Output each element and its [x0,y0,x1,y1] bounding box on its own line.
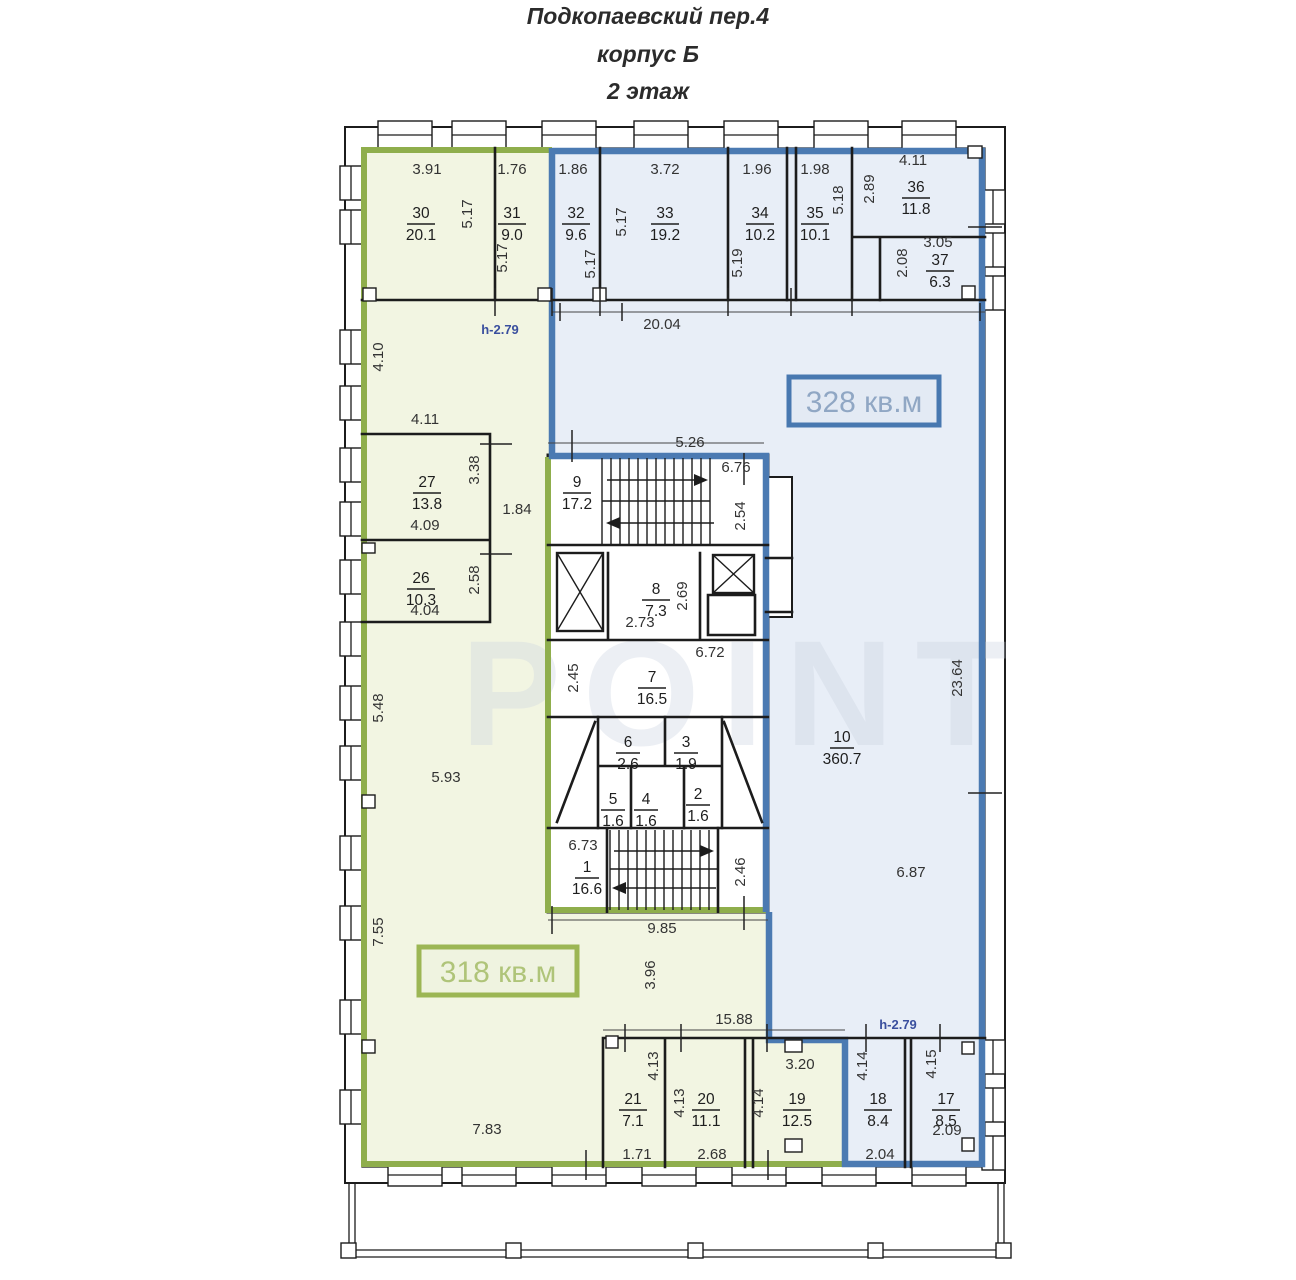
room-19-area: 12.5 [782,1113,812,1130]
dim-5-48: 5.48 [370,693,387,722]
dim-2-54: 2.54 [732,501,749,530]
dim-4-13-r20: 4.13 [671,1088,688,1117]
area-badge-green: 318 кв.м [419,947,577,995]
room-3-area: 1.9 [675,756,697,773]
room-33-area: 19.2 [650,227,680,244]
room-27-number: 27 [418,474,435,491]
dim-4-13-r21: 4.13 [645,1051,662,1080]
green-area-label: 318 кв.м [440,956,556,989]
dim-23-64: 23.64 [949,659,966,697]
room-5-area: 1.6 [602,813,624,830]
room-20-area: 11.1 [691,1113,720,1130]
dim-5-93: 5.93 [431,769,460,786]
balcony-outline [341,1183,1011,1258]
core-protrusion [766,477,792,617]
room-9-area: 17.2 [562,496,592,513]
dim-2-89: 2.89 [861,174,878,203]
dim-9-85: 9.85 [647,920,676,937]
room-1-number: 1 [583,859,592,876]
dim-1-98: 1.98 [800,161,829,178]
room-37-area: 6.3 [929,274,951,291]
dim-2-68: 2.68 [697,1146,726,1163]
room-32-number: 32 [567,205,584,222]
dim-4-09: 4.09 [410,517,439,534]
dim-2-45: 2.45 [565,663,582,692]
dim-5-17-r33: 5.17 [613,207,630,236]
room-35-number: 35 [806,205,823,222]
room-5-number: 5 [609,791,618,808]
height-note-top: h-2.79 [481,322,519,337]
room-9-number: 9 [573,474,582,491]
dim-6-87: 6.87 [896,864,925,881]
dim-3-72: 3.72 [650,161,679,178]
dim-3-38: 3.38 [466,455,483,484]
dim-2-73: 2.73 [625,614,654,631]
area-badge-blue: 328 кв.м [789,377,939,425]
dim-20-04: 20.04 [643,316,681,333]
room-31-number: 31 [503,205,520,222]
dim-5-19: 5.19 [729,248,746,277]
dim-2-46: 2.46 [732,857,749,886]
room-18-number: 18 [869,1091,886,1108]
dim-6-72: 6.72 [695,644,724,661]
room-18-area: 8.4 [867,1113,889,1130]
dim-4-14-r18: 4.14 [854,1051,871,1080]
dim-2-08: 2.08 [894,248,911,277]
room-2-number: 2 [694,786,703,803]
room-30-number: 30 [412,205,430,222]
floor-plan: Подкопаевский пер.4 корпус Б 2 этаж [0,0,1296,1280]
room-10-area: 360.7 [823,751,862,768]
room-32-area: 9.6 [565,227,587,244]
dim-4-11-room27: 4.11 [411,411,439,428]
title-line-3: 2 этаж [606,78,690,104]
dim-15-88: 15.88 [715,1011,753,1028]
room-1-area: 16.6 [572,881,602,898]
dim-3-91: 3.91 [412,161,441,178]
dim-1-84: 1.84 [502,501,531,518]
dim-1-86: 1.86 [558,161,587,178]
title-line-1: Подкопаевский пер.4 [527,3,770,29]
windows-left [340,166,363,1124]
dim-2-04: 2.04 [865,1146,894,1163]
dim-3-20: 3.20 [785,1056,814,1073]
dim-1-96: 1.96 [742,161,771,178]
dim-3-96: 3.96 [642,960,659,989]
dim-3-05: 3.05 [923,234,952,251]
dim-4-14-r19: 4.14 [750,1088,767,1117]
dim-1-71: 1.71 [622,1146,651,1163]
room-19-number: 19 [788,1091,805,1108]
dim-5-17-r32: 5.17 [582,249,599,278]
room-6-area: 2.6 [617,756,639,773]
room-7-number: 7 [648,669,657,686]
room-4-area: 1.6 [635,813,657,830]
dim-4-15: 4.15 [923,1049,940,1078]
room-34-area: 10.2 [745,227,775,244]
room-37-number: 37 [931,252,948,269]
room-4-number: 4 [642,791,651,808]
room-27-area: 13.8 [412,496,442,513]
room-20-number: 20 [697,1091,715,1108]
dim-6-73: 6.73 [568,837,597,854]
dim-4-10: 4.10 [370,342,387,371]
dim-5-18: 5.18 [830,185,847,214]
dim-7-55: 7.55 [370,917,387,946]
height-note-bottom: h-2.79 [879,1017,917,1032]
windows-top [378,121,956,149]
dim-2-58: 2.58 [466,565,483,594]
dim-1-76: 1.76 [497,161,526,178]
dim-4-04: 4.04 [410,602,439,619]
title-line-2: корпус Б [597,41,699,67]
room-36-number: 36 [907,179,924,196]
dim-5-17-r30: 5.17 [459,199,476,228]
room-36-area: 11.8 [901,201,930,218]
dim-7-83: 7.83 [472,1121,501,1138]
room-10-number: 10 [833,729,851,746]
title-block: Подкопаевский пер.4 корпус Б 2 этаж [527,3,770,104]
room-26-number: 26 [412,570,429,587]
room-35-area: 10.1 [800,227,830,244]
dim-5-26: 5.26 [675,434,704,451]
room-7-area: 16.5 [637,691,667,708]
room-21-number: 21 [624,1091,641,1108]
dim-6-76: 6.76 [721,459,750,476]
room-2-area: 1.6 [687,808,709,825]
room-6-number: 6 [624,734,633,751]
dim-2-09: 2.09 [932,1122,961,1139]
dim-5-17-r31: 5.17 [494,243,511,272]
room-8-number: 8 [652,581,661,598]
room-3-number: 3 [682,734,691,751]
room-30-area: 20.1 [406,227,436,244]
room-21-area: 7.1 [622,1113,644,1130]
room-33-number: 33 [656,205,673,222]
room-17-number: 17 [937,1091,954,1108]
dim-4-11-room36: 4.11 [899,152,927,169]
dim-2-69: 2.69 [674,581,691,610]
blue-area-label: 328 кв.м [806,386,922,419]
room-34-number: 34 [751,205,769,222]
room-31-area: 9.0 [501,227,523,244]
